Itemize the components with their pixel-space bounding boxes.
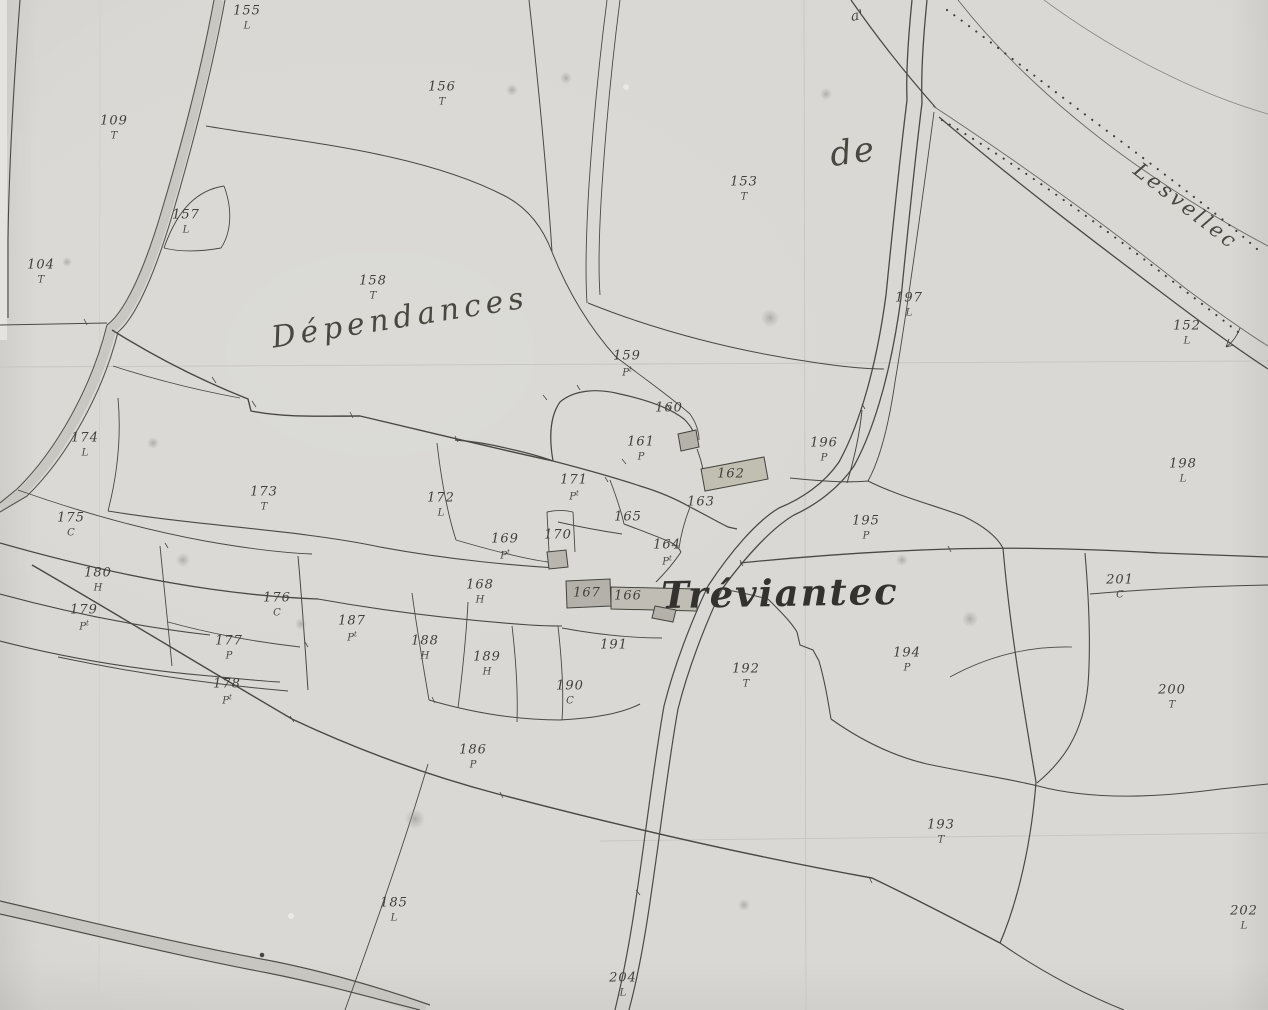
parcel-class-letter: L <box>172 226 200 236</box>
parcel-label-195: 195P <box>852 515 880 542</box>
parcel-label-172: 172L <box>427 492 455 519</box>
parcel-number: 175 <box>57 512 85 525</box>
parcel-label-198: 198L <box>1169 458 1197 485</box>
parcel-label-190: 190C <box>556 680 584 707</box>
parcel-number: 163 <box>687 496 715 509</box>
parcel-label-162: 162 <box>717 468 745 481</box>
parcel-label-155: 155L <box>233 5 261 32</box>
parcel-number: 170 <box>544 529 572 542</box>
parcel-number: 200 <box>1158 684 1186 697</box>
parcel-number: 189 <box>473 651 501 664</box>
parcel-number: 156 <box>428 81 456 94</box>
parcel-class-letter: T <box>100 132 128 142</box>
parcel-class-letter: C <box>57 529 85 539</box>
parcel-class-letter: L <box>609 989 637 999</box>
parcel-label-196: 196P <box>810 437 838 464</box>
parcel-class-letter: L <box>71 449 99 459</box>
parcel-label-189: 189H <box>473 651 501 678</box>
parcel-class-letter: Pt <box>613 366 641 378</box>
parcel-class-letter: P <box>852 532 880 542</box>
parcel-class-letter: L <box>380 914 408 924</box>
parcel-number: 164 <box>653 538 681 551</box>
parcel-class-letter: L <box>1169 475 1197 485</box>
parcel-number: 155 <box>233 5 261 18</box>
parcel-class-letter: Pt <box>560 490 588 502</box>
parcel-class-letter: Pt <box>338 631 366 643</box>
parcel-number: 196 <box>810 437 838 450</box>
parcel-number: 176 <box>263 592 291 605</box>
parcel-class-letter: P <box>627 453 655 463</box>
parcel-number: 185 <box>380 897 408 910</box>
parcel-number: 168 <box>466 579 494 592</box>
parcel-label-187: 187Pt <box>338 614 366 643</box>
parcel-class-letter: C <box>1106 591 1134 601</box>
parcel-label-160: 160 <box>655 402 683 415</box>
parcel-number: 188 <box>411 635 439 648</box>
parcel-label-192: 192T <box>732 663 760 690</box>
place-label-treviantec: Tréviantec <box>661 569 899 617</box>
parcel-label-194: 194P <box>893 647 921 674</box>
parcel-label-157: 157L <box>172 209 200 236</box>
parcel-class-letter: Pt <box>70 620 98 632</box>
parcel-label-104: 104T <box>27 259 55 286</box>
parcel-class-letter: C <box>556 697 584 707</box>
parcel-label-161: 161P <box>627 436 655 463</box>
parcel-label-169: 169Pt <box>491 532 519 561</box>
parcel-number: 165 <box>614 511 642 524</box>
parcel-class-letter: H <box>466 596 494 606</box>
parcel-class-letter: T <box>359 292 387 302</box>
parcel-label-179: 179Pt <box>70 603 98 632</box>
parcel-label-166: 166 <box>614 590 642 603</box>
parcel-class-letter: T <box>730 193 758 203</box>
parcel-class-letter: L <box>233 22 261 32</box>
parcel-number: 162 <box>717 468 745 481</box>
parcel-number: 193 <box>927 819 955 832</box>
parcel-label-163: 163 <box>687 496 715 509</box>
parcel-number: 177 <box>215 635 243 648</box>
parcel-number: 109 <box>100 115 128 128</box>
parcel-label-176: 176C <box>263 592 291 619</box>
parcel-label-204: 204L <box>609 972 637 999</box>
parcel-label-200: 200T <box>1158 684 1186 711</box>
parcel-class-letter: P <box>810 454 838 464</box>
parcel-label-177: 177P <box>215 635 243 662</box>
parcel-class-letter: T <box>250 503 278 513</box>
parcel-label-170: 170 <box>544 529 572 542</box>
parcel-number: 180 <box>84 567 112 580</box>
parcel-class-letter: H <box>411 652 439 662</box>
parcel-label-159: 159Pt <box>613 349 641 378</box>
parcel-class-letter: Pt <box>653 555 681 567</box>
cadastral-map-sheet: 155L156T109T153T157L104T158T197L152L159P… <box>0 0 1268 1010</box>
parcel-number: 153 <box>730 176 758 189</box>
parcel-label-158: 158T <box>359 275 387 302</box>
place-label-de: de <box>827 129 878 175</box>
parcel-class-letter: P <box>893 664 921 674</box>
parcel-number: 161 <box>627 436 655 449</box>
parcel-number: 197 <box>895 292 923 305</box>
parcel-number: 169 <box>491 532 519 545</box>
parcel-label-164: 164Pt <box>653 538 681 567</box>
parcel-class-letter: P <box>215 652 243 662</box>
parcel-class-letter: T <box>927 836 955 846</box>
parcel-number: 174 <box>71 432 99 445</box>
parcel-number: 186 <box>459 744 487 757</box>
parcel-number: 178 <box>213 677 241 690</box>
parcel-number: 167 <box>573 587 601 600</box>
parcel-class-letter: L <box>427 509 455 519</box>
map-labels-layer: 155L156T109T153T157L104T158T197L152L159P… <box>0 0 1268 1010</box>
parcel-number: 157 <box>172 209 200 222</box>
parcel-label-153: 153T <box>730 176 758 203</box>
parcel-number: 160 <box>655 402 683 415</box>
place-label-dependances: Dépendances <box>269 280 531 355</box>
parcel-number: 190 <box>556 680 584 693</box>
parcel-class-letter: L <box>1230 922 1258 932</box>
parcel-number: 172 <box>427 492 455 505</box>
parcel-class-letter: T <box>27 276 55 286</box>
parcel-label-168: 168H <box>466 579 494 606</box>
place-label-road-mark: a' <box>850 7 865 25</box>
parcel-class-letter: T <box>1158 701 1186 711</box>
parcel-label-193: 193T <box>927 819 955 846</box>
parcel-number: 187 <box>338 614 366 627</box>
parcel-number: 159 <box>613 349 641 362</box>
parcel-label-174: 174L <box>71 432 99 459</box>
parcel-number: 179 <box>70 603 98 616</box>
parcel-label-173: 173T <box>250 486 278 513</box>
parcel-class-letter: Pt <box>491 549 519 561</box>
parcel-number: 152 <box>1173 320 1201 333</box>
parcel-label-178: 178Pt <box>213 677 241 706</box>
parcel-class-letter: T <box>428 98 456 108</box>
parcel-label-191: 191 <box>600 639 628 652</box>
parcel-number: 166 <box>614 590 642 603</box>
parcel-label-185: 185L <box>380 897 408 924</box>
parcel-label-152: 152L <box>1173 320 1201 347</box>
parcel-number: 158 <box>359 275 387 288</box>
parcel-label-202: 202L <box>1230 905 1258 932</box>
parcel-class-letter: Pt <box>213 694 241 706</box>
parcel-label-180: 180H <box>84 567 112 594</box>
parcel-number: 104 <box>27 259 55 272</box>
parcel-label-197: 197L <box>895 292 923 319</box>
parcel-class-letter: C <box>263 609 291 619</box>
parcel-label-167: 167 <box>573 587 601 600</box>
parcel-class-letter: H <box>84 584 112 594</box>
parcel-label-175: 175C <box>57 512 85 539</box>
place-label-lesvellec: Lesvellec <box>1129 158 1243 255</box>
parcel-number: 171 <box>560 473 588 486</box>
parcel-class-letter: L <box>895 309 923 319</box>
parcel-label-171: 171Pt <box>560 473 588 502</box>
parcel-number: 173 <box>250 486 278 499</box>
parcel-number: 202 <box>1230 905 1258 918</box>
parcel-number: 194 <box>893 647 921 660</box>
parcel-label-201: 201C <box>1106 574 1134 601</box>
parcel-number: 191 <box>600 639 628 652</box>
parcel-number: 201 <box>1106 574 1134 587</box>
parcel-class-letter: P <box>459 761 487 771</box>
parcel-label-188: 188H <box>411 635 439 662</box>
parcel-class-letter: L <box>1173 337 1201 347</box>
parcel-class-letter: H <box>473 668 501 678</box>
parcel-class-letter: T <box>732 680 760 690</box>
parcel-label-156: 156T <box>428 81 456 108</box>
parcel-label-109: 109T <box>100 115 128 142</box>
parcel-label-165: 165 <box>614 511 642 524</box>
parcel-number: 195 <box>852 515 880 528</box>
parcel-number: 192 <box>732 663 760 676</box>
parcel-number: 204 <box>609 972 637 985</box>
parcel-number: 198 <box>1169 458 1197 471</box>
parcel-label-186: 186P <box>459 744 487 771</box>
